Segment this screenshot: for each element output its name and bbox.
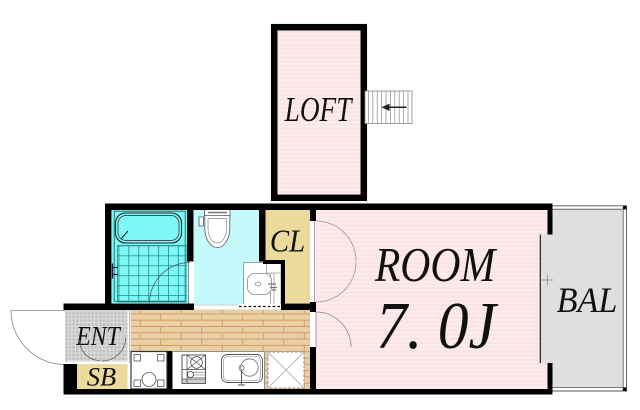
svg-text:CL: CL bbox=[270, 223, 305, 259]
svg-text:SB: SB bbox=[87, 362, 116, 392]
svg-text:BAL: BAL bbox=[557, 280, 618, 320]
svg-text:ROOM: ROOM bbox=[374, 237, 497, 292]
svg-text:7. 0J: 7. 0J bbox=[376, 289, 499, 363]
svg-text:ENT: ENT bbox=[75, 321, 121, 352]
svg-text:LOFT: LOFT bbox=[284, 90, 354, 129]
